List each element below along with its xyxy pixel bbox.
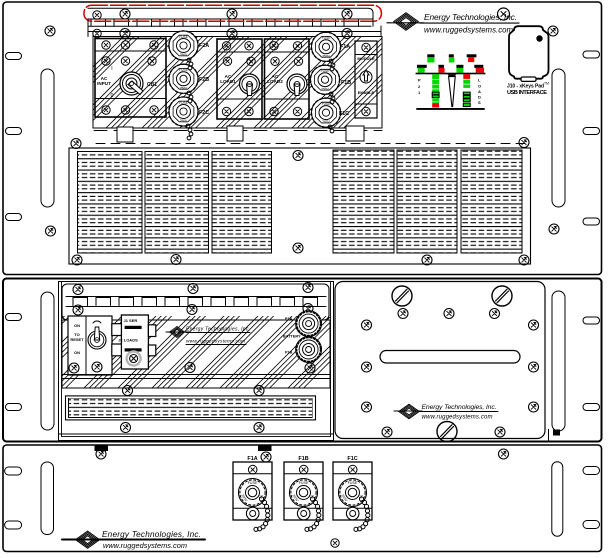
svg-text:O: O (478, 84, 481, 89)
svg-text:F2B: F2B (199, 77, 209, 83)
svg-text:J2 LOADS: J2 LOADS (118, 338, 138, 343)
svg-text:P1A: P1A (285, 317, 293, 321)
svg-text:CB1: CB1 (147, 82, 157, 88)
svg-text:F1A: F1A (247, 456, 257, 462)
svg-text:S: S (478, 100, 481, 105)
svg-text:ENABLE: ENABLE (358, 90, 375, 95)
svg-text:www.ruggedsystems.com: www.ruggedsystems.com (103, 541, 187, 550)
svg-text:F2C: F2C (199, 110, 209, 116)
svg-text:F1B: F1B (341, 80, 351, 86)
svg-text:P: P (418, 78, 421, 83)
svg-text:www.ruggedsystems.com: www.ruggedsystems.com (186, 339, 245, 345)
svg-text:F1A: F1A (340, 44, 350, 50)
svg-text:I: I (111, 66, 112, 72)
svg-text:J10 - xKeys Pad: J10 - xKeys Pad (507, 84, 544, 90)
svg-text:Energy Technologies, Inc.: Energy Technologies, Inc. (102, 530, 201, 539)
svg-text:LOAD1: LOAD1 (220, 79, 236, 84)
svg-text:RESET: RESET (70, 337, 84, 342)
svg-text:MODULE: MODULE (357, 56, 375, 61)
svg-text:Energy Technologies, Inc.: Energy Technologies, Inc. (186, 327, 250, 333)
svg-text:ON: ON (74, 350, 80, 355)
svg-text:TM: TM (544, 82, 549, 86)
svg-text:www.ruggedsystems.com: www.ruggedsystems.com (422, 415, 493, 421)
svg-text:A: A (478, 89, 481, 94)
svg-text:BATTERY: BATTERY (283, 335, 301, 339)
svg-text:Energy Technologies, Inc.: Energy Technologies, Inc. (422, 404, 497, 411)
svg-text:www.ruggedsystems.com: www.ruggedsystems.com (424, 26, 514, 35)
svg-text:F1C: F1C (339, 111, 349, 117)
svg-text:USB INTERFACE: USB INTERFACE (507, 90, 547, 96)
svg-text:J1 SER: J1 SER (124, 318, 138, 323)
svg-text:P1B: P1B (285, 351, 293, 355)
svg-text:LOAD2: LOAD2 (267, 79, 283, 84)
svg-text:D: D (478, 95, 481, 100)
svg-text:F1B: F1B (298, 456, 308, 462)
svg-text:ON: ON (74, 323, 80, 328)
svg-text:0: 0 (111, 93, 114, 99)
svg-text:INPUT: INPUT (97, 81, 111, 86)
svg-text:F1C: F1C (347, 456, 357, 462)
svg-text:F2A: F2A (199, 43, 209, 49)
